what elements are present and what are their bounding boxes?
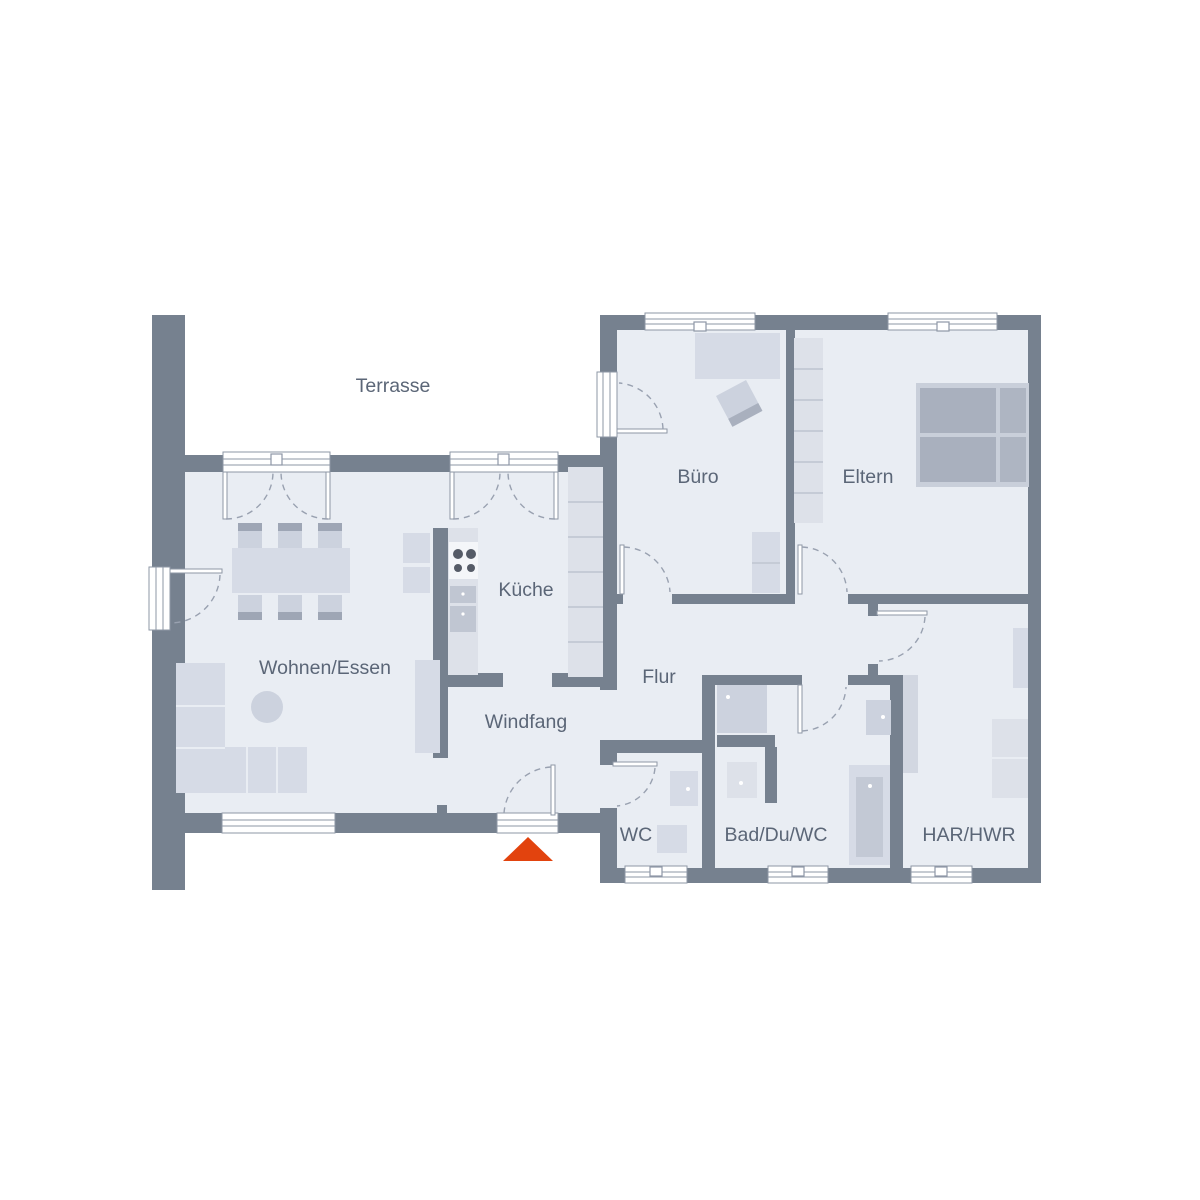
desk <box>695 333 780 379</box>
entrance-arrow <box>503 837 553 861</box>
floor-plan: Terrasse Wohnen/Essen Küche Windfang Flu… <box>0 0 1200 1200</box>
wall-bad-north <box>712 675 802 685</box>
chair-back <box>278 612 302 620</box>
dining-table <box>232 548 350 593</box>
wc-washbasin <box>670 771 698 806</box>
dining-set <box>232 523 350 620</box>
chair-back <box>318 612 342 620</box>
dryer <box>992 759 1028 798</box>
window-eltern-north <box>888 313 997 331</box>
pillow <box>1000 388 1026 433</box>
wall-windfang-north-stub <box>448 673 503 687</box>
wall-buero-west-upper <box>600 330 617 372</box>
room-label-terrasse: Terrasse <box>356 375 431 397</box>
shower <box>717 685 767 733</box>
wardrobe <box>794 338 823 523</box>
wall-buero-west-lower <box>600 437 617 455</box>
double-bed <box>916 383 1029 487</box>
burner-icon <box>467 564 475 572</box>
wall-shower-partition <box>717 735 775 747</box>
toilet <box>657 825 687 853</box>
side-table <box>251 691 283 723</box>
room-label-buero: Büro <box>677 466 718 488</box>
wall-wc-north <box>615 740 705 753</box>
window-buero-north <box>645 313 755 331</box>
washing-machine <box>992 719 1028 757</box>
room-label-windfang: Windfang <box>485 711 567 733</box>
burner-icon <box>453 549 463 559</box>
kitchen-counter <box>448 528 478 675</box>
burner-icon <box>454 564 462 572</box>
room-label-wohnen-essen: Wohnen/Essen <box>259 657 391 679</box>
burner-icon <box>466 549 476 559</box>
window-bad-south <box>768 866 828 883</box>
room-label-kueche: Küche <box>498 579 553 601</box>
window-wohnen-south <box>222 813 335 833</box>
chair-back <box>238 523 262 531</box>
wall-wc-west-lower <box>600 808 617 883</box>
cooktop <box>449 542 478 579</box>
wall-har-west <box>890 675 903 868</box>
kitchen-tall-cabinets <box>568 467 603 677</box>
room-label-bad: Bad/Du/WC <box>725 824 828 846</box>
wall-wc-bad-divider <box>702 675 715 868</box>
office-cabinet <box>752 532 780 593</box>
wall-eltern-south <box>848 594 1028 604</box>
kitchen-sink <box>450 606 476 632</box>
bad-washbasin <box>727 762 757 798</box>
wall-terrace-2 <box>330 455 450 472</box>
chair-back <box>278 523 302 531</box>
tv-lowboard <box>415 660 440 753</box>
wall-buero-eltern-divider <box>786 330 795 594</box>
har-tall-cabinet <box>1013 628 1028 688</box>
pillow <box>1000 437 1026 482</box>
wall-buero-door-jamb <box>604 594 623 604</box>
room-label-har: HAR/HWR <box>922 824 1015 846</box>
wall-outer-right <box>1028 315 1041 883</box>
kitchen-sideboard-upper <box>403 533 430 563</box>
wall-wc-west-upper <box>600 740 617 765</box>
wall-bad-partition-vertical <box>765 747 777 803</box>
chair-back <box>238 612 262 620</box>
chair-back <box>318 523 342 531</box>
window-wc-south <box>625 866 687 883</box>
bad-washbasin-2 <box>866 700 891 735</box>
wall-terrace-1 <box>185 455 223 472</box>
window-har-south <box>911 866 972 883</box>
room-label-wc: WC <box>620 824 653 846</box>
mattress <box>920 437 996 482</box>
kitchen-sideboard-lower <box>403 567 430 593</box>
bathtub <box>849 765 890 865</box>
floor-plan-canvas: Terrasse Wohnen/Essen Küche Windfang Flu… <box>0 0 1200 1200</box>
wall-wohnen-windfang-stub <box>437 805 447 817</box>
room-label-eltern: Eltern <box>843 466 894 488</box>
har-wall-cabinet <box>903 675 918 773</box>
wall-buero-south <box>672 594 795 604</box>
room-label-flur: Flur <box>642 666 676 688</box>
mattress <box>920 388 996 433</box>
